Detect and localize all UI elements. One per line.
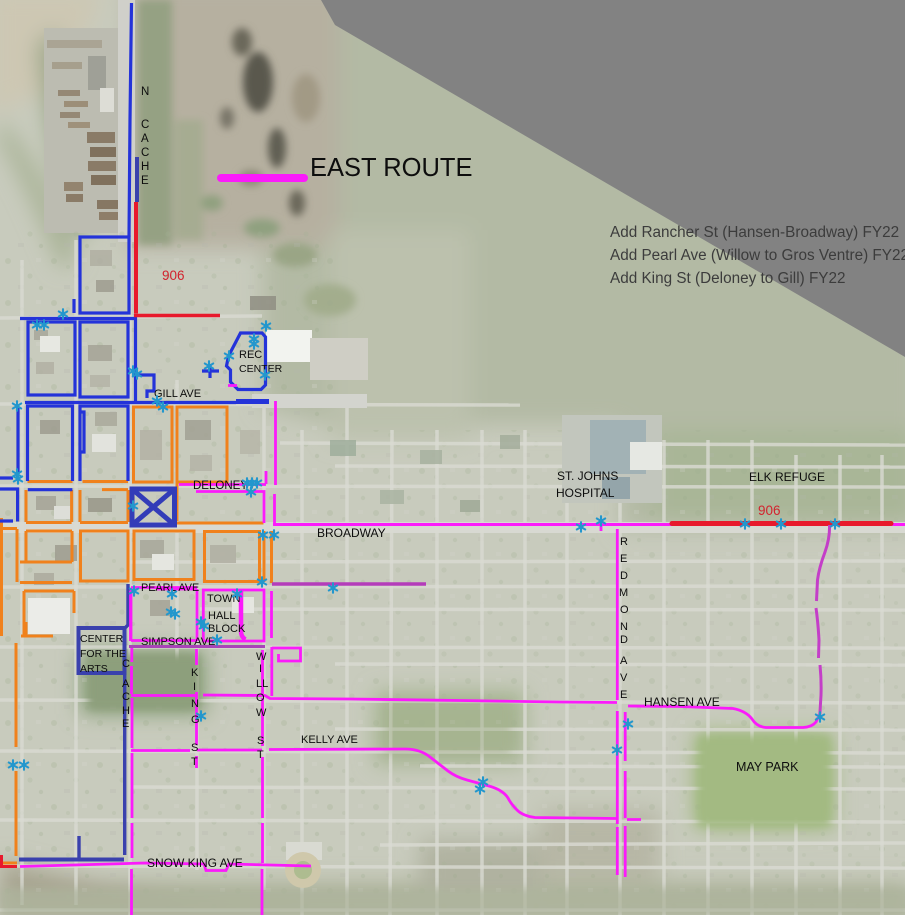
svg-text:N: N xyxy=(141,86,149,98)
svg-text:HANSEN AVE: HANSEN AVE xyxy=(644,695,720,709)
svg-text:C: C xyxy=(141,147,149,159)
svg-text:A: A xyxy=(122,678,130,690)
svg-text:W: W xyxy=(256,707,267,719)
svg-text:C: C xyxy=(122,691,130,703)
svg-text:906: 906 xyxy=(758,503,781,518)
svg-text:I: I xyxy=(193,681,196,693)
svg-text:D: D xyxy=(620,634,628,646)
svg-text:O: O xyxy=(256,692,265,704)
svg-text:Add King St (Deloney to Gill): Add King St (Deloney to Gill) FY22 xyxy=(610,270,846,287)
svg-text:FOR THE: FOR THE xyxy=(80,648,126,660)
svg-text:Add Pearl Ave (Willow to Gros: Add Pearl Ave (Willow to Gros Ventre) FY… xyxy=(610,247,905,264)
svg-text:K: K xyxy=(191,667,199,679)
svg-text:906: 906 xyxy=(162,268,185,283)
svg-text:BROADWAY: BROADWAY xyxy=(317,526,386,540)
svg-text:W: W xyxy=(256,651,267,663)
svg-text:M: M xyxy=(619,587,628,599)
svg-text:A: A xyxy=(620,655,628,667)
svg-text:SIMPSON AVE: SIMPSON AVE xyxy=(141,636,215,648)
svg-text:E: E xyxy=(620,689,627,701)
svg-text:SNOW KING AVE: SNOW KING AVE xyxy=(147,856,243,870)
svg-text:H: H xyxy=(122,705,130,717)
svg-text:G: G xyxy=(191,714,200,726)
svg-text:D: D xyxy=(620,570,628,582)
svg-text:A: A xyxy=(141,133,149,145)
svg-text:ARTS: ARTS xyxy=(80,663,108,675)
svg-text:BLOCK: BLOCK xyxy=(208,623,246,635)
svg-text:N: N xyxy=(620,621,628,633)
svg-text:I: I xyxy=(259,663,262,675)
svg-text:KELLY AVE: KELLY AVE xyxy=(301,734,358,746)
svg-text:V: V xyxy=(620,672,628,684)
svg-text:C: C xyxy=(122,658,130,670)
svg-text:R: R xyxy=(620,536,628,548)
svg-text:T: T xyxy=(191,756,198,768)
svg-text:S: S xyxy=(257,735,264,747)
svg-text:T: T xyxy=(257,749,264,761)
svg-text:O: O xyxy=(620,604,629,616)
svg-text:E: E xyxy=(141,175,149,187)
svg-text:C: C xyxy=(141,119,149,131)
svg-text:ELK REFUGE: ELK REFUGE xyxy=(749,470,825,484)
svg-text:EAST ROUTE: EAST ROUTE xyxy=(310,154,472,182)
svg-text:H: H xyxy=(141,161,149,173)
svg-text:Add Rancher St (Hansen-Broadwa: Add Rancher St (Hansen-Broadway) FY22 xyxy=(610,224,899,241)
svg-text:E: E xyxy=(122,718,129,730)
svg-text:REC: REC xyxy=(239,349,262,361)
svg-text:S: S xyxy=(191,742,198,754)
svg-text:HALL: HALL xyxy=(208,610,236,622)
svg-text:MAY PARK: MAY PARK xyxy=(736,760,799,774)
svg-text:N: N xyxy=(191,698,199,710)
svg-text:LL: LL xyxy=(256,678,268,690)
svg-text:ST. JOHNS: ST. JOHNS xyxy=(557,469,618,483)
svg-text:HOSPITAL: HOSPITAL xyxy=(556,486,615,500)
svg-text:E: E xyxy=(620,553,627,565)
svg-text:CENTER: CENTER xyxy=(80,633,124,645)
svg-text:DELONEY: DELONEY xyxy=(193,480,248,492)
